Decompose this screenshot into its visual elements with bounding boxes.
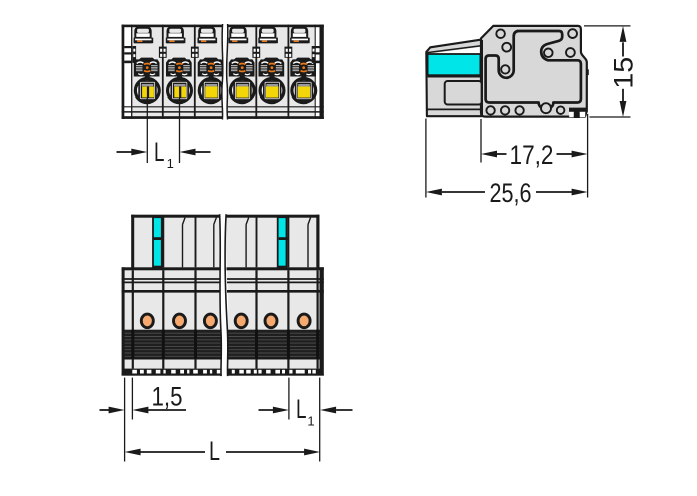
svg-text:15: 15 bbox=[609, 57, 639, 89]
svg-text:L: L bbox=[209, 436, 220, 466]
svg-text:17,2: 17,2 bbox=[510, 140, 554, 170]
svg-text:L: L bbox=[296, 394, 307, 424]
svg-text:1,5: 1,5 bbox=[152, 382, 183, 412]
svg-text:25,6: 25,6 bbox=[490, 178, 532, 208]
svg-text:1: 1 bbox=[167, 156, 174, 171]
svg-text:L: L bbox=[154, 137, 165, 167]
svg-text:1: 1 bbox=[307, 414, 314, 429]
